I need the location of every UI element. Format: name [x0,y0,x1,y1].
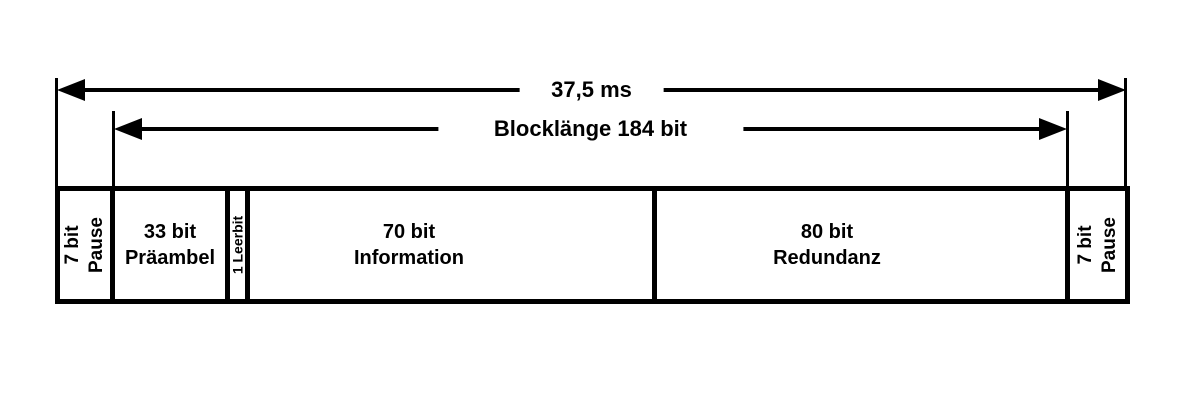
segment-pause-right-label: 7 bit Pause [1074,217,1122,273]
arrowhead-right-icon [1039,118,1067,140]
segment-redundancy: 80 bit Redundanz [657,191,1070,299]
segment-preamble: 33 bit Präambel [115,191,230,299]
segment-pause-left-label: 7 bit Pause [61,217,109,273]
frame-bar: 7 bit Pause 33 bit Präambel 1 Leerbit 70… [55,186,1130,304]
segment-preamble-label: 33 bit Präambel [125,219,215,271]
telegram-frame-diagram: 37,5 ms Blocklänge 184 bit 7 bit Pause 3… [0,0,1200,400]
tick-outer-right [1124,78,1127,186]
segment-size-text: 80 bit [773,219,881,245]
tick-inner-right [1066,111,1069,186]
arrowhead-right-icon [1098,79,1126,101]
total-duration-label: 37,5 ms [519,77,664,103]
segment-pause-right: 7 bit Pause [1070,191,1125,299]
segment-leerbit-label: 1 Leerbit [230,216,245,274]
segment-name-text: Information [354,245,464,271]
segment-pause-left: 7 bit Pause [60,191,115,299]
segment-redundancy-label: 80 bit Redundanz [773,219,881,271]
segment-size-text: 70 bit [354,219,464,245]
total-duration-arrow: 37,5 ms [57,78,1126,102]
segment-name-text: Pause [1098,217,1122,273]
segment-name-text: Redundanz [773,245,881,271]
segment-information-label: 70 bit Information [354,219,464,271]
tick-inner-left [112,111,115,186]
segment-information: 70 bit Information [250,191,657,299]
segment-size-text: 33 bit [125,219,215,245]
block-length-arrow: Blocklänge 184 bit [114,117,1067,141]
segment-size-text: 7 bit [61,217,85,273]
tick-outer-left [55,78,58,186]
segment-name-text: Pause [85,217,109,273]
segment-name-text: Präambel [125,245,215,271]
block-length-label: Blocklänge 184 bit [438,116,743,142]
segment-leerbit: 1 Leerbit [230,191,250,299]
segment-size-text: 7 bit [1074,217,1098,273]
